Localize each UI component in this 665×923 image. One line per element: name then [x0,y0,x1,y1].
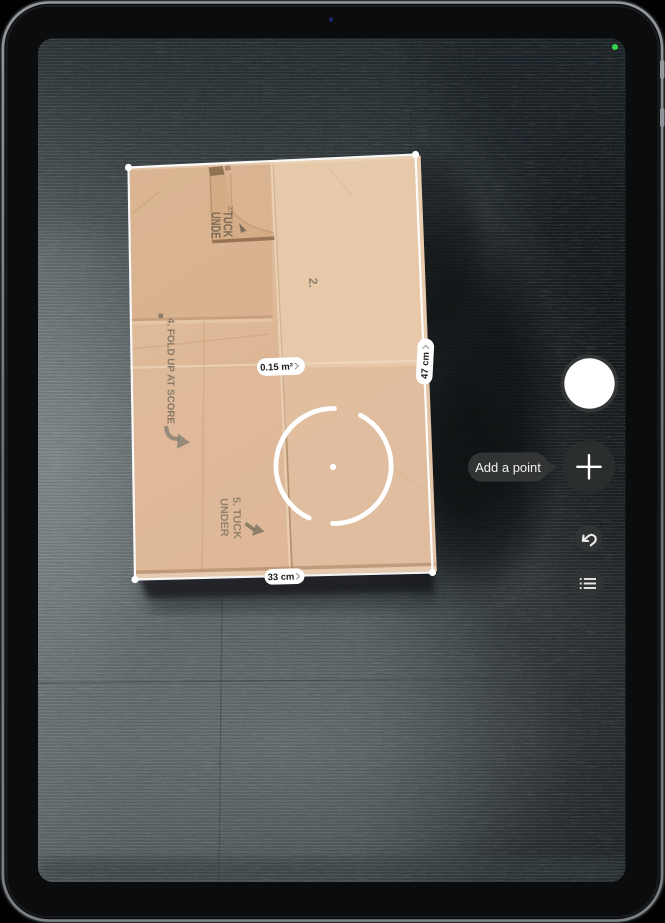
svg-text:Add a point: Add a point [475,460,541,475]
svg-text:0.15 m²: 0.15 m² [260,361,293,373]
svg-text:UNDE: UNDE [209,212,224,239]
svg-text:33 cm: 33 cm [268,571,295,583]
svg-text:47 cm: 47 cm [419,352,431,379]
svg-text:4. FOLD UP AT SCORE: 4. FOLD UP AT SCORE [165,318,176,424]
svg-text:5. TUCK: 5. TUCK [230,497,243,539]
svg-text:2.: 2. [306,278,320,288]
svg-text:UNDER: UNDER [218,498,231,537]
